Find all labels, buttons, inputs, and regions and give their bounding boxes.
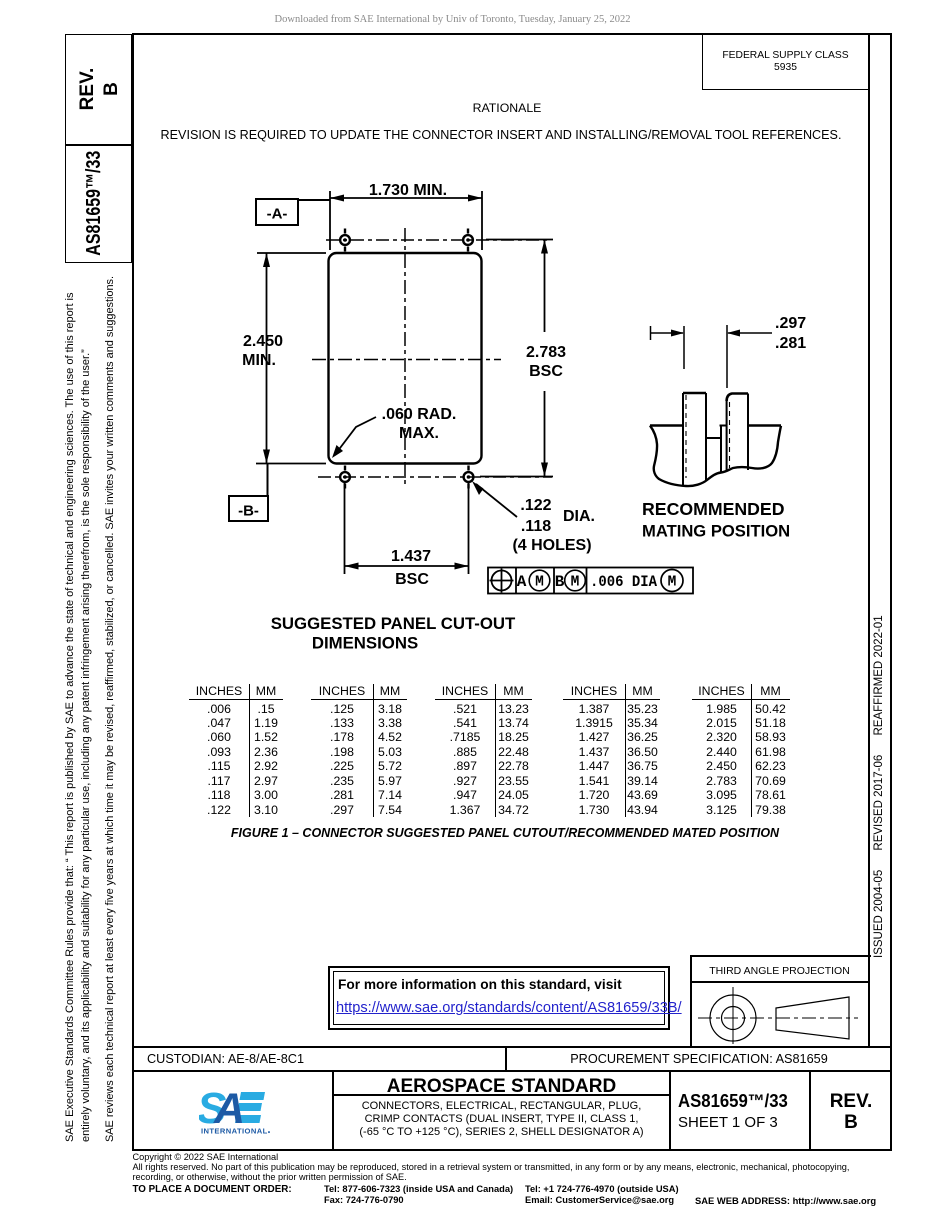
svg-text:1.437: 1.437 — [391, 548, 431, 565]
svg-text:RECOMMENDED: RECOMMENDED — [642, 499, 785, 519]
svg-text:MATING POSITION: MATING POSITION — [642, 522, 790, 541]
svg-text:.006 DIA: .006 DIA — [590, 573, 657, 591]
svg-text:(4 HOLES): (4 HOLES) — [512, 537, 591, 554]
svg-text:SUGGESTED PANEL CUT-OUT: SUGGESTED PANEL CUT-OUT — [271, 614, 516, 633]
svg-text:BSC: BSC — [395, 571, 429, 588]
svg-text:B: B — [555, 573, 565, 591]
svg-text:-A-: -A- — [267, 206, 288, 223]
svg-text:.297: .297 — [775, 315, 806, 332]
svg-text:2.450: 2.450 — [243, 333, 283, 350]
svg-text:-B-: -B- — [238, 503, 259, 520]
svg-text:.122: .122 — [520, 497, 551, 514]
svg-text:.281: .281 — [775, 335, 806, 352]
svg-text:M: M — [668, 575, 677, 591]
svg-text:DIMENSIONS: DIMENSIONS — [312, 634, 418, 653]
svg-text:DIA.: DIA. — [563, 508, 595, 525]
svg-text:2.783: 2.783 — [526, 344, 566, 361]
svg-text:MAX.: MAX. — [399, 425, 439, 442]
svg-text:.060 RAD.: .060 RAD. — [382, 406, 457, 423]
svg-text:INTERNATIONAL●: INTERNATIONAL● — [201, 1127, 271, 1136]
svg-text:1.730 MIN.: 1.730 MIN. — [369, 182, 447, 199]
svg-text:A: A — [517, 573, 527, 591]
svg-text:MIN.: MIN. — [242, 352, 276, 369]
svg-text:M: M — [571, 575, 580, 591]
svg-text:BSC: BSC — [529, 363, 563, 380]
svg-text:.118: .118 — [521, 518, 551, 535]
svg-text:M: M — [535, 575, 544, 591]
